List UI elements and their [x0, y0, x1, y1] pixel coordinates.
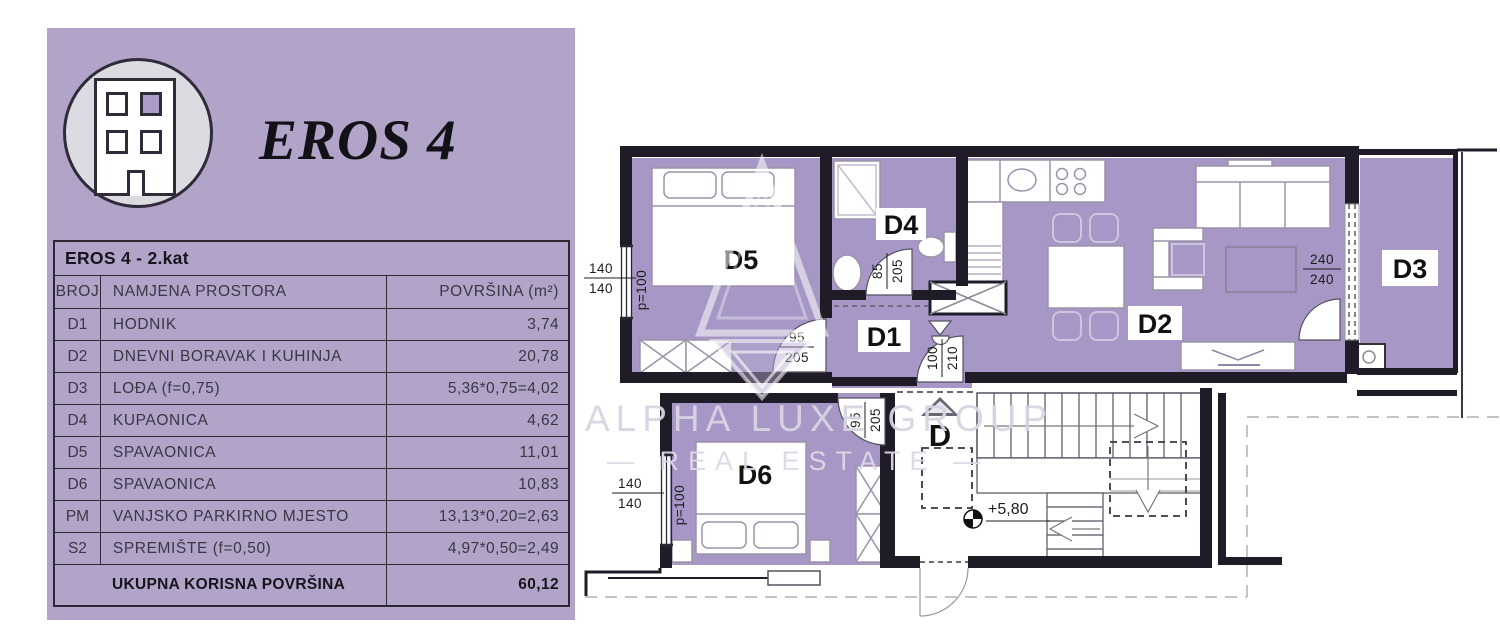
- col-header-namjena: NAMJENA PROSTORA: [100, 276, 386, 309]
- svg-text:140: 140: [618, 496, 642, 511]
- building-window-icon: [140, 130, 162, 154]
- watermark-line1: ALPHA LUXE GROUP: [585, 398, 1053, 439]
- col-header-broj: BROJ: [54, 276, 100, 309]
- room-name-cell: KUPAONICA: [100, 405, 386, 437]
- building-icon: [94, 78, 176, 196]
- total-label: UKUPNA KORISNA POVRŠINA: [54, 565, 386, 607]
- tv-stand: [1181, 342, 1295, 370]
- room-area-cell: 11,01: [386, 437, 569, 469]
- room-id-cell: D6: [54, 469, 100, 501]
- table-caption-row: EROS 4 - 2.kat: [54, 241, 569, 276]
- room-area-cell: 20,78: [386, 341, 569, 373]
- watermark-line2: — REAL ESTATE —: [607, 446, 989, 476]
- dim-d5-parapet: p=100: [634, 270, 649, 310]
- svg-text:240: 240: [1310, 252, 1334, 267]
- page: { "panel": { "title": "EROS 4", "table":…: [0, 0, 1500, 637]
- dim-d6-parapet: p=100: [672, 485, 687, 525]
- room-id-cell: D1: [54, 309, 100, 341]
- table-row: D2 DNEVNI BORAVAK I KUHINJA 20,78: [54, 341, 569, 373]
- window-d5: [620, 246, 633, 318]
- nightstand: [810, 540, 830, 562]
- room-label-d2: D2: [1138, 309, 1173, 339]
- area-table-wrap: EROS 4 - 2.kat BROJ NAMJENA PROSTORA POV…: [53, 240, 570, 607]
- nightstand: [672, 540, 692, 562]
- table-total-row: UKUPNA KORISNA POVRŠINA 60,12: [54, 565, 569, 607]
- room-area-cell: 4,97*0,50=2,49: [386, 533, 569, 565]
- room-id-cell: D3: [54, 373, 100, 405]
- table-row: D1 HODNIK 3,74: [54, 309, 569, 341]
- room-area-cell: 13,13*0,20=2,63: [386, 501, 569, 533]
- room-name-cell: SPAVAONICA: [100, 437, 386, 469]
- col-header-povrsina: POVRŠINA (m²): [386, 276, 569, 309]
- room-id-cell: D5: [54, 437, 100, 469]
- table-row: S2 SPREMIŠTE (f=0,50) 4,97*0,50=2,49: [54, 533, 569, 565]
- level-value: +5,80: [988, 501, 1029, 518]
- washbasin-d4: [833, 255, 861, 291]
- room-name-cell: LOĐA (f=0,75): [100, 373, 386, 405]
- table-row: D5 SPAVAONICA 11,01: [54, 437, 569, 469]
- level-marker: +5,80: [964, 501, 1050, 528]
- room-label-d1: D1: [867, 322, 902, 352]
- agency-logo: [63, 58, 213, 208]
- room-id-cell: S2: [54, 533, 100, 565]
- table-row: D3 LOĐA (f=0,75) 5,36*0,75=4,02: [54, 373, 569, 405]
- svg-text:210: 210: [945, 346, 960, 370]
- room-area-cell: 5,36*0,75=4,02: [386, 373, 569, 405]
- table-row: D4 KUPAONICA 4,62: [54, 405, 569, 437]
- room-name-cell: HODNIK: [100, 309, 386, 341]
- room-name-cell: SPREMIŠTE (f=0,50): [100, 533, 386, 565]
- svg-text:240: 240: [1310, 272, 1334, 287]
- svg-text:140: 140: [589, 261, 613, 276]
- room-name-cell: SPAVAONICA: [100, 469, 386, 501]
- building-window-icon: [106, 92, 128, 116]
- dim-d5-window: 140 140: [584, 261, 636, 296]
- table-row: D6 SPAVAONICA 10,83: [54, 469, 569, 501]
- svg-text:100: 100: [925, 346, 940, 370]
- shower-d4: [834, 161, 880, 219]
- dim-d6-window: 140 140: [612, 476, 664, 511]
- room-area-cell: 3,74: [386, 309, 569, 341]
- room-area-cell: 4,62: [386, 405, 569, 437]
- project-title: EROS 4: [259, 108, 457, 173]
- svg-text:205: 205: [890, 259, 905, 283]
- building-door-icon: [127, 170, 145, 196]
- area-table: EROS 4 - 2.kat BROJ NAMJENA PROSTORA POV…: [53, 240, 570, 607]
- room-label-d3: D3: [1393, 254, 1428, 284]
- room-name-cell: DNEVNI BORAVAK I KUHINJA: [100, 341, 386, 373]
- sliding-door-d3: [1345, 204, 1359, 340]
- table-caption: EROS 4 - 2.kat: [54, 241, 569, 276]
- svg-text:140: 140: [618, 476, 642, 491]
- svg-text:140: 140: [589, 281, 613, 296]
- sofa: [1196, 160, 1330, 228]
- table-header-row: BROJ NAMJENA PROSTORA POVRŠINA (m²): [54, 276, 569, 309]
- svg-text:85: 85: [870, 263, 885, 279]
- total-value: 60,12: [386, 565, 569, 607]
- info-panel: EROS 4 EROS 4 - 2.kat BROJ NAMJENA PROST…: [47, 28, 575, 620]
- room-label-d4: D4: [884, 210, 919, 240]
- tv: [1226, 247, 1296, 292]
- building-window-icon: [106, 130, 128, 154]
- floor-plan: 140 140 p=100 95 205 85 205 100 210 240 …: [580, 130, 1500, 637]
- building-window-icon: [140, 92, 162, 116]
- room-id-cell: D4: [54, 405, 100, 437]
- room-id-cell: D2: [54, 341, 100, 373]
- table-row: PM VANJSKO PARKIRNO MJESTO 13,13*0,20=2,…: [54, 501, 569, 533]
- room-name-cell: VANJSKO PARKIRNO MJESTO: [100, 501, 386, 533]
- room-area-cell: 10,83: [386, 469, 569, 501]
- room-id-cell: PM: [54, 501, 100, 533]
- loggia-drain: [1357, 344, 1385, 370]
